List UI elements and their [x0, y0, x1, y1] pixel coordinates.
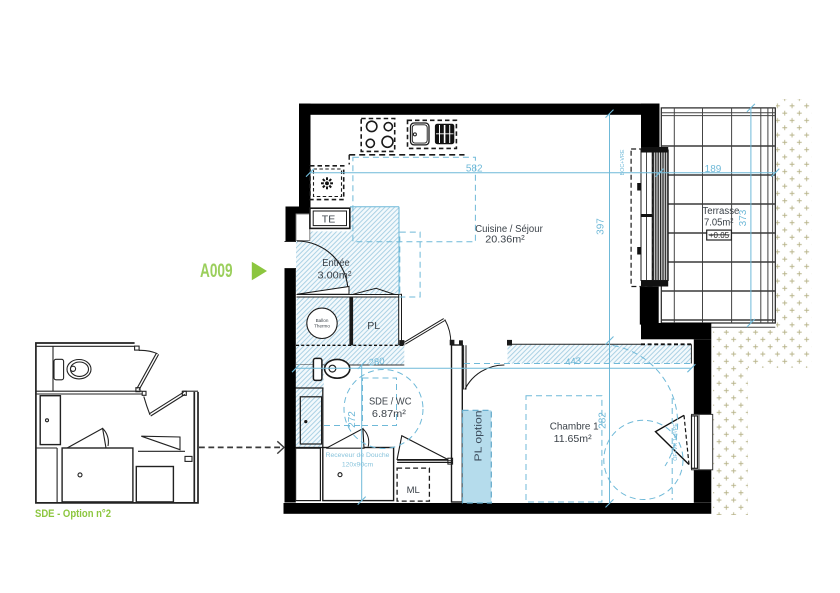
svg-text:TE: TE — [322, 214, 335, 226]
svg-text:Entrée: Entrée — [322, 258, 350, 269]
svg-text:282: 282 — [598, 412, 609, 429]
svg-text:120x90cm: 120x90cm — [342, 462, 374, 469]
svg-text:Thermo: Thermo — [314, 324, 330, 329]
svg-text:272: 272 — [347, 411, 358, 428]
svg-text:BOC+VRE: BOC+VRE — [620, 149, 626, 175]
svg-text:A009: A009 — [200, 261, 233, 282]
svg-text:20.36m²: 20.36m² — [485, 235, 525, 246]
svg-text:7.05m²: 7.05m² — [704, 218, 734, 229]
svg-text:373: 373 — [738, 209, 749, 226]
svg-text:3.00m²: 3.00m² — [318, 270, 353, 281]
svg-text:11.65m²: 11.65m² — [554, 434, 593, 445]
svg-text:+0.05: +0.05 — [709, 231, 730, 240]
svg-text:Cuisine / Séjour: Cuisine / Séjour — [475, 224, 543, 235]
svg-text:SDE - Option n°2: SDE - Option n°2 — [35, 508, 111, 520]
svg-text:6.87m²: 6.87m² — [372, 409, 407, 420]
svg-text:582: 582 — [466, 163, 483, 174]
svg-text:ML: ML — [407, 485, 420, 496]
svg-text:280: 280 — [368, 356, 385, 369]
svg-text:Terrasse: Terrasse — [702, 206, 739, 217]
svg-text:PL option: PL option — [473, 410, 485, 461]
svg-text:Chambre 1: Chambre 1 — [550, 422, 599, 433]
svg-text:397: 397 — [596, 218, 607, 235]
svg-text:Receveur de Douche: Receveur de Douche — [326, 452, 390, 459]
svg-text:Ballon: Ballon — [316, 318, 329, 323]
svg-text:443: 443 — [565, 356, 582, 369]
svg-text:PL: PL — [367, 320, 380, 332]
svg-text:OF+VR 1m²/PE: OF+VR 1m²/PE — [673, 423, 679, 461]
svg-text:SDE / WC: SDE / WC — [369, 397, 412, 408]
svg-text:189: 189 — [705, 164, 722, 175]
